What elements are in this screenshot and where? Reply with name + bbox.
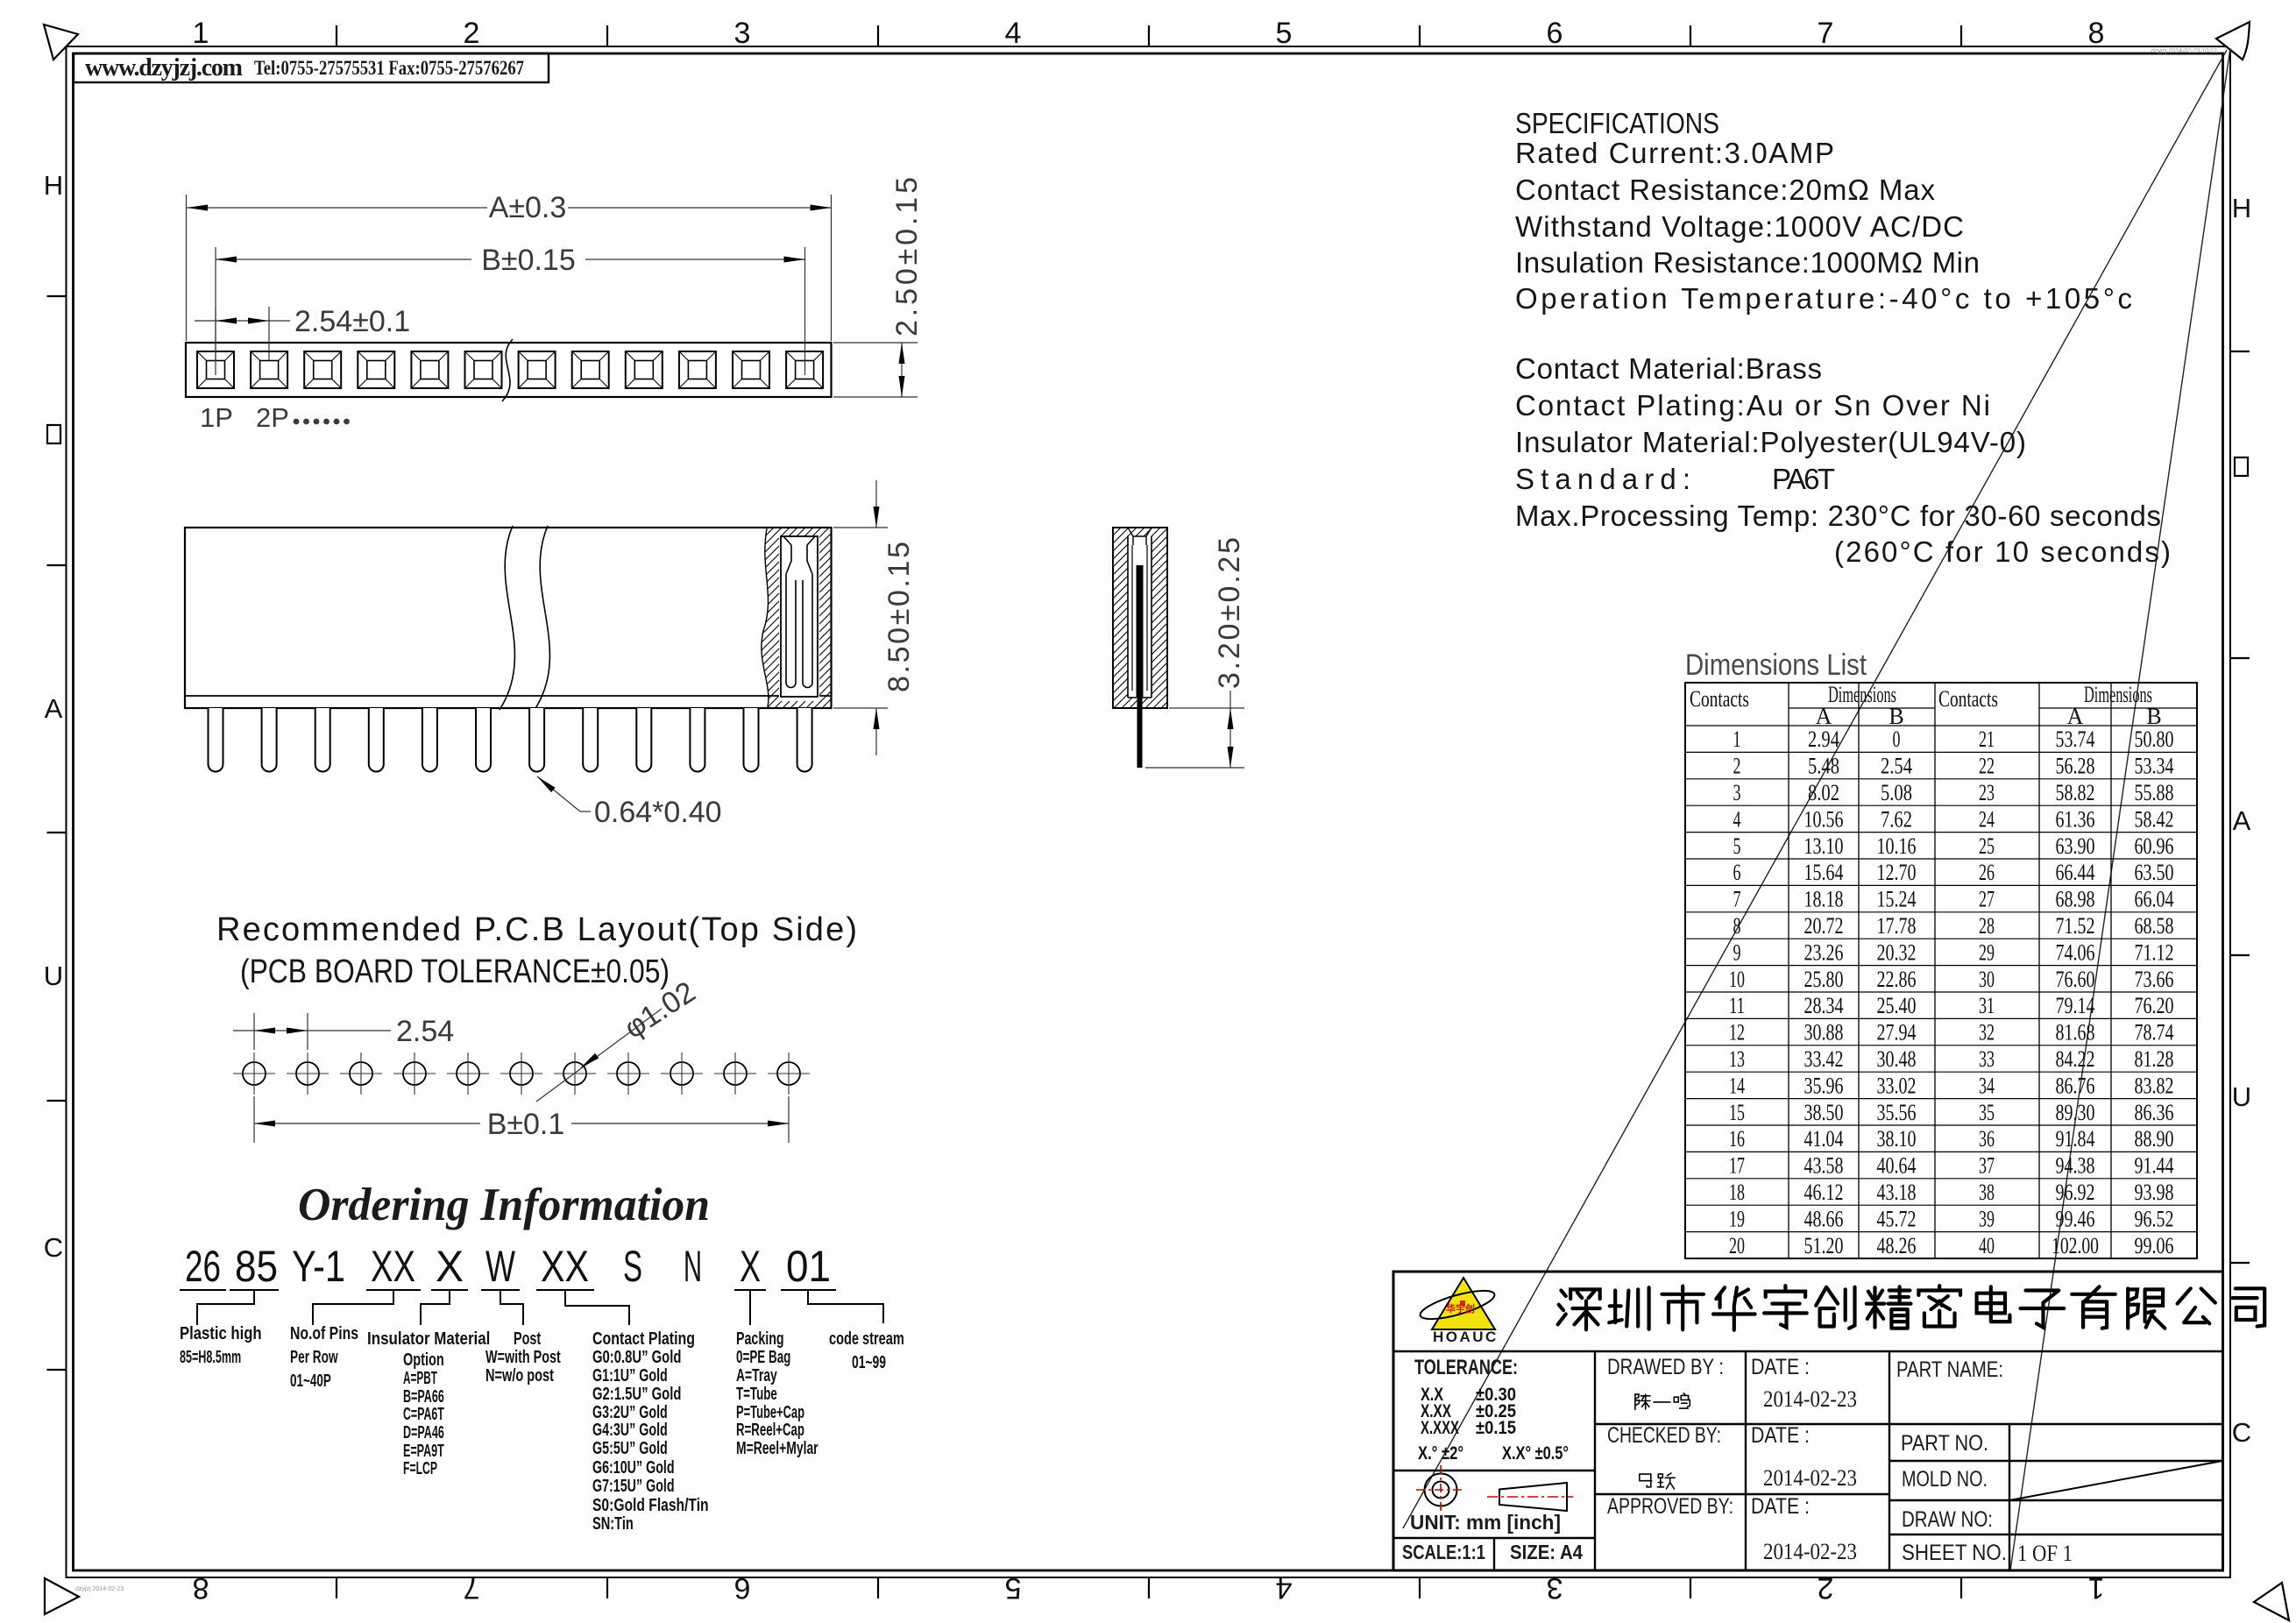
svg-text:85=H8.5mm: 85=H8.5mm bbox=[180, 1348, 241, 1367]
svg-text:22: 22 bbox=[1979, 754, 1995, 779]
svg-text:M=Reel+Mylar: M=Reel+Mylar bbox=[736, 1439, 818, 1458]
svg-text:2.54±0.1: 2.54±0.1 bbox=[294, 305, 410, 338]
svg-text:DRAW NO:: DRAW NO: bbox=[1902, 1507, 1993, 1532]
svg-text:43.18: 43.18 bbox=[1877, 1180, 1917, 1205]
svg-text:71.12: 71.12 bbox=[2135, 939, 2174, 965]
svg-text:29: 29 bbox=[1979, 939, 1995, 965]
svg-text:7: 7 bbox=[1818, 17, 1834, 50]
svg-text:G3:2U” Gold: G3:2U” Gold bbox=[592, 1403, 668, 1422]
svg-text:HOAUC: HOAUC bbox=[1433, 1329, 1499, 1345]
svg-text:22.86: 22.86 bbox=[1877, 967, 1917, 992]
svg-text:Y-1: Y-1 bbox=[292, 1242, 345, 1291]
svg-text:U: U bbox=[44, 960, 63, 991]
svg-text:dzyjzj 2014-02-23 10:22: dzyjzj 2014-02-23 10:22 bbox=[2151, 48, 2217, 54]
svg-text:B±0.15: B±0.15 bbox=[481, 244, 576, 277]
svg-text:A=PBT: A=PBT bbox=[403, 1369, 437, 1388]
svg-text:Recommended P.C.B Layout(Top S: Recommended P.C.B Layout(Top Side) bbox=[216, 911, 857, 948]
svg-text:30: 30 bbox=[1979, 967, 1995, 992]
svg-text:53.74: 53.74 bbox=[2056, 726, 2095, 752]
svg-text:79.14: 79.14 bbox=[2056, 993, 2095, 1018]
svg-text:94.38: 94.38 bbox=[2056, 1153, 2095, 1179]
svg-text:23: 23 bbox=[1979, 780, 1995, 805]
svg-text:20: 20 bbox=[1729, 1233, 1745, 1258]
svg-text:01~40P: 01~40P bbox=[290, 1371, 331, 1391]
svg-text:24: 24 bbox=[1979, 806, 1995, 832]
svg-text:A=Tray: A=Tray bbox=[736, 1366, 777, 1386]
svg-text:4: 4 bbox=[1005, 17, 1022, 50]
svg-text:40.64: 40.64 bbox=[1877, 1153, 1917, 1179]
svg-text:19: 19 bbox=[1729, 1206, 1745, 1231]
svg-text:35.96: 35.96 bbox=[1804, 1073, 1844, 1098]
svg-text:X: X bbox=[740, 1242, 761, 1291]
svg-text:7.62: 7.62 bbox=[1881, 806, 1912, 832]
svg-text:5.48: 5.48 bbox=[1808, 754, 1839, 779]
svg-text:Contacts: Contacts bbox=[1938, 686, 1998, 712]
svg-text:A: A bbox=[1816, 704, 1832, 729]
svg-text:8.50±0.15: 8.50±0.15 bbox=[882, 542, 916, 692]
svg-text:38.50: 38.50 bbox=[1804, 1100, 1844, 1125]
svg-text:63.90: 63.90 bbox=[2056, 833, 2095, 859]
svg-text:W=with Post: W=with Post bbox=[485, 1348, 561, 1367]
svg-text:10.56: 10.56 bbox=[1804, 806, 1844, 832]
svg-text:2: 2 bbox=[464, 17, 480, 50]
svg-text:Contact Plating:Au or Sn Over: Contact Plating:Au or Sn Over Ni bbox=[1515, 389, 1990, 422]
svg-text:23.26: 23.26 bbox=[1804, 939, 1844, 965]
svg-text:UNIT: mm [inch]: UNIT: mm [inch] bbox=[1410, 1511, 1561, 1534]
svg-text:C: C bbox=[2232, 1417, 2251, 1448]
svg-text:28: 28 bbox=[1979, 913, 1995, 939]
svg-text:S0:Gold Flash/Tin: S0:Gold Flash/Tin bbox=[592, 1496, 709, 1515]
svg-text:N: N bbox=[684, 1242, 702, 1291]
svg-text:26: 26 bbox=[1979, 860, 1995, 885]
svg-text:74.06: 74.06 bbox=[2056, 939, 2095, 965]
svg-text:25: 25 bbox=[1979, 833, 1995, 859]
svg-text:Standard:: Standard: bbox=[1515, 463, 1690, 495]
svg-text:66.04: 66.04 bbox=[2135, 887, 2174, 912]
svg-text:10.16: 10.16 bbox=[1877, 833, 1917, 859]
svg-text:APPROVED BY:: APPROVED BY: bbox=[1607, 1494, 1733, 1519]
svg-text:33.42: 33.42 bbox=[1804, 1046, 1844, 1072]
svg-text:H: H bbox=[2232, 193, 2251, 223]
svg-text:93.98: 93.98 bbox=[2135, 1180, 2174, 1205]
svg-text:28.34: 28.34 bbox=[1804, 993, 1844, 1018]
svg-text:C: C bbox=[44, 1232, 63, 1263]
svg-text:34: 34 bbox=[1979, 1073, 1995, 1098]
svg-text:48.26: 48.26 bbox=[1877, 1233, 1917, 1258]
svg-text:5.08: 5.08 bbox=[1881, 780, 1912, 805]
svg-text:A: A bbox=[45, 693, 63, 724]
svg-text:15.64: 15.64 bbox=[1804, 860, 1844, 885]
svg-text:85: 85 bbox=[235, 1242, 278, 1291]
svg-text:dzyjzj 2014-02-23: dzyjzj 2014-02-23 bbox=[75, 1586, 124, 1592]
svg-text:99.06: 99.06 bbox=[2135, 1233, 2174, 1258]
svg-text:37: 37 bbox=[1979, 1153, 1995, 1179]
svg-text:01: 01 bbox=[786, 1242, 831, 1291]
svg-text:8: 8 bbox=[2088, 17, 2105, 50]
svg-text:B: B bbox=[1889, 704, 1903, 729]
svg-text:83.82: 83.82 bbox=[2135, 1073, 2174, 1098]
svg-text:Packing: Packing bbox=[736, 1329, 784, 1349]
svg-text:Ordering Information: Ordering Information bbox=[298, 1180, 710, 1230]
svg-text:1: 1 bbox=[193, 17, 209, 50]
svg-text:SN:Tin: SN:Tin bbox=[592, 1514, 634, 1534]
svg-text:2P: 2P bbox=[256, 402, 289, 433]
svg-text:58.82: 58.82 bbox=[2056, 780, 2095, 805]
svg-text:6: 6 bbox=[1547, 17, 1563, 50]
svg-text:13: 13 bbox=[1729, 1046, 1745, 1072]
svg-text:Contact Plating: Contact Plating bbox=[592, 1329, 695, 1349]
svg-text:55.88: 55.88 bbox=[2135, 780, 2174, 805]
svg-text:B±0.1: B±0.1 bbox=[487, 1108, 565, 1141]
svg-text:Insulator Material: Insulator Material bbox=[367, 1329, 490, 1349]
svg-text:81.68: 81.68 bbox=[2056, 1020, 2095, 1045]
svg-text:9: 9 bbox=[1733, 939, 1741, 965]
svg-text:www.dzyjzj.com: www.dzyjzj.com bbox=[85, 54, 243, 82]
svg-text:C=PA6T: C=PA6T bbox=[403, 1405, 444, 1424]
svg-text:G1:1U” Gold: G1:1U” Gold bbox=[592, 1366, 668, 1386]
svg-text:SIZE: A4: SIZE: A4 bbox=[1510, 1541, 1583, 1563]
svg-text:102.00: 102.00 bbox=[2052, 1233, 2099, 1258]
svg-text:DATE :: DATE : bbox=[1751, 1494, 1810, 1519]
svg-text:76.60: 76.60 bbox=[2056, 967, 2095, 992]
svg-text:5: 5 bbox=[1276, 17, 1293, 50]
svg-text:0.64*0.40: 0.64*0.40 bbox=[594, 796, 722, 829]
svg-text:Tel:0755-27575531 Fax:0755-27: Tel:0755-27575531 Fax:0755-27576267 bbox=[254, 57, 524, 79]
svg-text:A±0.3: A±0.3 bbox=[489, 191, 567, 224]
svg-text:35.56: 35.56 bbox=[1877, 1100, 1917, 1125]
svg-text:G2:1.5U” Gold: G2:1.5U” Gold bbox=[592, 1385, 681, 1404]
svg-text:2014-02-23: 2014-02-23 bbox=[1763, 1386, 1857, 1412]
svg-text:7: 7 bbox=[464, 1571, 480, 1605]
svg-text:30.88: 30.88 bbox=[1804, 1020, 1844, 1045]
svg-text:56.28: 56.28 bbox=[2056, 754, 2095, 779]
svg-text:53.34: 53.34 bbox=[2135, 754, 2174, 779]
svg-text:40: 40 bbox=[1979, 1233, 1995, 1258]
svg-text:2014-02-23: 2014-02-23 bbox=[1763, 1539, 1857, 1564]
svg-text:10: 10 bbox=[1729, 967, 1745, 992]
svg-text:88.90: 88.90 bbox=[2135, 1126, 2174, 1152]
svg-text:31: 31 bbox=[1979, 993, 1995, 1018]
svg-text:Contact Material:Brass: Contact Material:Brass bbox=[1515, 352, 1822, 385]
svg-text:DATE :: DATE : bbox=[1751, 1423, 1810, 1448]
svg-text:15.24: 15.24 bbox=[1877, 887, 1917, 912]
svg-text:N=w/o post: N=w/o post bbox=[485, 1366, 554, 1386]
svg-text:6: 6 bbox=[1733, 860, 1741, 885]
svg-text:Insulation Resistance:1000MΩ M: Insulation Resistance:1000MΩ Min bbox=[1515, 246, 1980, 279]
svg-text:1P: 1P bbox=[200, 402, 233, 433]
svg-text:SCALE:1:1: SCALE:1:1 bbox=[1402, 1541, 1485, 1563]
svg-text:G7:15U” Gold: G7:15U” Gold bbox=[592, 1477, 675, 1496]
svg-text:Dimensions List: Dimensions List bbox=[1685, 648, 1867, 682]
svg-text:A: A bbox=[2233, 805, 2251, 836]
svg-text:G5:5U” Gold: G5:5U” Gold bbox=[592, 1439, 668, 1458]
svg-text:R=Reel+Cap: R=Reel+Cap bbox=[736, 1421, 804, 1440]
svg-text:63.50: 63.50 bbox=[2135, 860, 2174, 885]
svg-text:2014-02-23: 2014-02-23 bbox=[1763, 1465, 1857, 1491]
svg-text:13.10: 13.10 bbox=[1804, 833, 1844, 859]
svg-text:SHEET NO.: SHEET NO. bbox=[1902, 1541, 2007, 1565]
svg-text:Plastic high: Plastic high bbox=[180, 1324, 262, 1343]
svg-text:27.94: 27.94 bbox=[1877, 1020, 1917, 1045]
svg-text:41.04: 41.04 bbox=[1804, 1126, 1844, 1152]
svg-text:Withstand Voltage:1000V AC/DC: Withstand Voltage:1000V AC/DC bbox=[1515, 210, 1964, 243]
svg-text:38: 38 bbox=[1979, 1180, 1995, 1205]
svg-text:A: A bbox=[2067, 704, 2084, 729]
svg-text:20.72: 20.72 bbox=[1804, 913, 1844, 939]
svg-text:PART NO.: PART NO. bbox=[1901, 1431, 1988, 1456]
svg-text:3: 3 bbox=[734, 17, 751, 50]
svg-text:XX: XX bbox=[541, 1242, 589, 1291]
svg-text:U: U bbox=[2232, 1081, 2251, 1112]
svg-text:±0.15: ±0.15 bbox=[1476, 1418, 1516, 1438]
svg-text:30.48: 30.48 bbox=[1877, 1046, 1917, 1072]
svg-text:58.42: 58.42 bbox=[2135, 806, 2174, 832]
svg-text:86.36: 86.36 bbox=[2135, 1100, 2174, 1125]
svg-text:2: 2 bbox=[1818, 1571, 1834, 1605]
svg-text:2.50±0.15: 2.50±0.15 bbox=[890, 177, 924, 337]
svg-text:2.94: 2.94 bbox=[1808, 726, 1839, 752]
svg-text:8.02: 8.02 bbox=[1808, 780, 1839, 805]
svg-text:S: S bbox=[623, 1242, 642, 1291]
svg-text:D=PA46: D=PA46 bbox=[403, 1423, 444, 1442]
svg-text:SPECIFICATIONS: SPECIFICATIONS bbox=[1515, 107, 1719, 139]
svg-text:01~99: 01~99 bbox=[852, 1353, 886, 1372]
svg-text:3: 3 bbox=[1547, 1571, 1563, 1605]
svg-text:MOLD NO.: MOLD NO. bbox=[1902, 1467, 1988, 1492]
svg-text:PART NAME:: PART NAME: bbox=[1896, 1357, 2003, 1382]
svg-text:32: 32 bbox=[1979, 1020, 1995, 1045]
svg-text:33.02: 33.02 bbox=[1877, 1073, 1917, 1098]
svg-text:68.98: 68.98 bbox=[2056, 887, 2095, 912]
svg-text:Contacts: Contacts bbox=[1690, 686, 1749, 712]
svg-text:P=Tube+Cap: P=Tube+Cap bbox=[736, 1403, 804, 1422]
svg-text:H: H bbox=[44, 170, 63, 201]
svg-text:(PCB BOARD TOLERANCE±0.05): (PCB BOARD TOLERANCE±0.05) bbox=[240, 953, 670, 990]
svg-text:27: 27 bbox=[1979, 887, 1995, 912]
svg-text:1 OF 1: 1 OF 1 bbox=[2017, 1541, 2073, 1566]
svg-text:86.76: 86.76 bbox=[2056, 1073, 2095, 1098]
svg-text:91.44: 91.44 bbox=[2135, 1153, 2174, 1179]
svg-text:71.52: 71.52 bbox=[2056, 913, 2095, 939]
svg-text:3.20±0.25: 3.20±0.25 bbox=[1213, 537, 1246, 689]
svg-text:43.58: 43.58 bbox=[1804, 1153, 1844, 1179]
svg-text:1: 1 bbox=[1733, 726, 1741, 752]
svg-text:Dimensions: Dimensions bbox=[2084, 682, 2152, 707]
svg-text:0: 0 bbox=[1893, 726, 1901, 752]
svg-text:code stream: code stream bbox=[829, 1329, 904, 1349]
svg-text:51.20: 51.20 bbox=[1804, 1233, 1844, 1258]
svg-text:8: 8 bbox=[1733, 913, 1741, 939]
svg-text:Option: Option bbox=[403, 1350, 444, 1370]
svg-text:96.52: 96.52 bbox=[2135, 1206, 2174, 1231]
svg-text:5: 5 bbox=[1005, 1571, 1022, 1605]
svg-text:68.58: 68.58 bbox=[2135, 913, 2174, 939]
svg-text:B: B bbox=[2146, 704, 2161, 729]
svg-text:Per Row: Per Row bbox=[290, 1348, 338, 1367]
svg-text:66.44: 66.44 bbox=[2056, 860, 2095, 885]
svg-text:Dimensions: Dimensions bbox=[1828, 682, 1896, 707]
svg-text:15: 15 bbox=[1729, 1100, 1745, 1125]
svg-text:G0:0.8U” Gold: G0:0.8U” Gold bbox=[592, 1348, 681, 1367]
svg-text:99.46: 99.46 bbox=[2056, 1206, 2095, 1231]
svg-text:61.36: 61.36 bbox=[2056, 806, 2095, 832]
svg-text:89.30: 89.30 bbox=[2056, 1100, 2095, 1125]
svg-text:2.54: 2.54 bbox=[396, 1015, 454, 1048]
svg-text:X.° ±2°: X.° ±2° bbox=[1418, 1443, 1463, 1464]
svg-text:0=PE Bag: 0=PE Bag bbox=[736, 1348, 790, 1367]
svg-text:96.92: 96.92 bbox=[2056, 1180, 2095, 1205]
svg-text:3: 3 bbox=[1733, 780, 1741, 805]
svg-text:华宇创: 华宇创 bbox=[1446, 1302, 1475, 1315]
svg-text:Contact Resistance:20mΩ Max: Contact Resistance:20mΩ Max bbox=[1515, 174, 1936, 206]
svg-text:17: 17 bbox=[1729, 1153, 1745, 1179]
svg-text:12: 12 bbox=[1729, 1020, 1745, 1045]
svg-text:39: 39 bbox=[1979, 1206, 1995, 1231]
svg-text:CHECKED BY:: CHECKED BY: bbox=[1607, 1423, 1721, 1448]
svg-text:F=LCP: F=LCP bbox=[403, 1459, 437, 1478]
svg-text:W: W bbox=[485, 1242, 516, 1291]
svg-text:6: 6 bbox=[734, 1571, 751, 1605]
svg-text:26: 26 bbox=[185, 1242, 221, 1291]
svg-text:76.20: 76.20 bbox=[2135, 993, 2174, 1018]
svg-text:45.72: 45.72 bbox=[1877, 1206, 1917, 1231]
svg-text:DATE :: DATE : bbox=[1751, 1355, 1810, 1379]
svg-text:25.80: 25.80 bbox=[1804, 967, 1844, 992]
svg-text:E=PA9T: E=PA9T bbox=[403, 1442, 444, 1461]
svg-text:TOLERANCE:: TOLERANCE: bbox=[1414, 1356, 1518, 1379]
svg-text:Post: Post bbox=[514, 1329, 541, 1349]
svg-text:PA6T: PA6T bbox=[1772, 463, 1835, 495]
svg-text:X: X bbox=[436, 1242, 464, 1291]
svg-text:18: 18 bbox=[1729, 1180, 1745, 1205]
svg-text:17.78: 17.78 bbox=[1877, 913, 1917, 939]
svg-text:DRAWED BY :: DRAWED BY : bbox=[1607, 1355, 1724, 1379]
svg-text:Max.Processing Temp: 230°C for: Max.Processing Temp: 230°C for 30-60 sec… bbox=[1515, 500, 2161, 532]
svg-text:20.32: 20.32 bbox=[1877, 939, 1917, 965]
svg-text:81.28: 81.28 bbox=[2135, 1046, 2174, 1072]
svg-text:X.X° ±0.5°: X.X° ±0.5° bbox=[1502, 1443, 1569, 1464]
svg-text:18.18: 18.18 bbox=[1804, 887, 1844, 912]
svg-text:4: 4 bbox=[1733, 806, 1741, 832]
svg-text:14: 14 bbox=[1729, 1073, 1745, 1098]
svg-text:16: 16 bbox=[1729, 1126, 1745, 1152]
svg-text:78.74: 78.74 bbox=[2135, 1020, 2174, 1045]
svg-text:7: 7 bbox=[1733, 887, 1741, 912]
svg-text:G6:10U” Gold: G6:10U” Gold bbox=[592, 1458, 675, 1478]
svg-text:60.96: 60.96 bbox=[2135, 833, 2174, 859]
svg-text:Insulator Material:Polyester(U: Insulator Material:Polyester(UL94V-0) bbox=[1515, 426, 2026, 458]
svg-text:5: 5 bbox=[1733, 833, 1741, 859]
svg-text:No.of Pins: No.of Pins bbox=[290, 1324, 358, 1343]
svg-text:2: 2 bbox=[1733, 754, 1741, 779]
svg-text:4: 4 bbox=[1276, 1571, 1293, 1605]
svg-text:X.XXX: X.XXX bbox=[1421, 1418, 1459, 1438]
svg-text:84.22: 84.22 bbox=[2056, 1046, 2095, 1072]
svg-text:G4:3U” Gold: G4:3U” Gold bbox=[592, 1421, 668, 1440]
svg-text:XX: XX bbox=[371, 1242, 415, 1291]
svg-text:1: 1 bbox=[2088, 1571, 2105, 1605]
svg-text:2.54: 2.54 bbox=[1881, 754, 1912, 779]
svg-text:36: 36 bbox=[1979, 1126, 1995, 1152]
svg-text:91.84: 91.84 bbox=[2056, 1126, 2095, 1152]
svg-text:50.80: 50.80 bbox=[2135, 726, 2174, 752]
svg-text:11: 11 bbox=[1729, 993, 1745, 1018]
svg-text:T=Tube: T=Tube bbox=[736, 1385, 777, 1404]
svg-text:21: 21 bbox=[1979, 726, 1995, 752]
svg-text:25.40: 25.40 bbox=[1877, 993, 1917, 1018]
svg-text:12.70: 12.70 bbox=[1877, 860, 1917, 885]
svg-text:(260°C for 10 seconds): (260°C for 10 seconds) bbox=[1834, 535, 2171, 568]
svg-text:73.66: 73.66 bbox=[2135, 967, 2174, 992]
svg-text:35: 35 bbox=[1979, 1100, 1995, 1125]
svg-text:33: 33 bbox=[1979, 1046, 1995, 1072]
svg-text:8: 8 bbox=[193, 1571, 209, 1605]
svg-text:46.12: 46.12 bbox=[1804, 1180, 1844, 1205]
svg-text:38.10: 38.10 bbox=[1877, 1126, 1917, 1152]
svg-text:B=PA66: B=PA66 bbox=[403, 1387, 444, 1407]
svg-text:48.66: 48.66 bbox=[1804, 1206, 1844, 1231]
